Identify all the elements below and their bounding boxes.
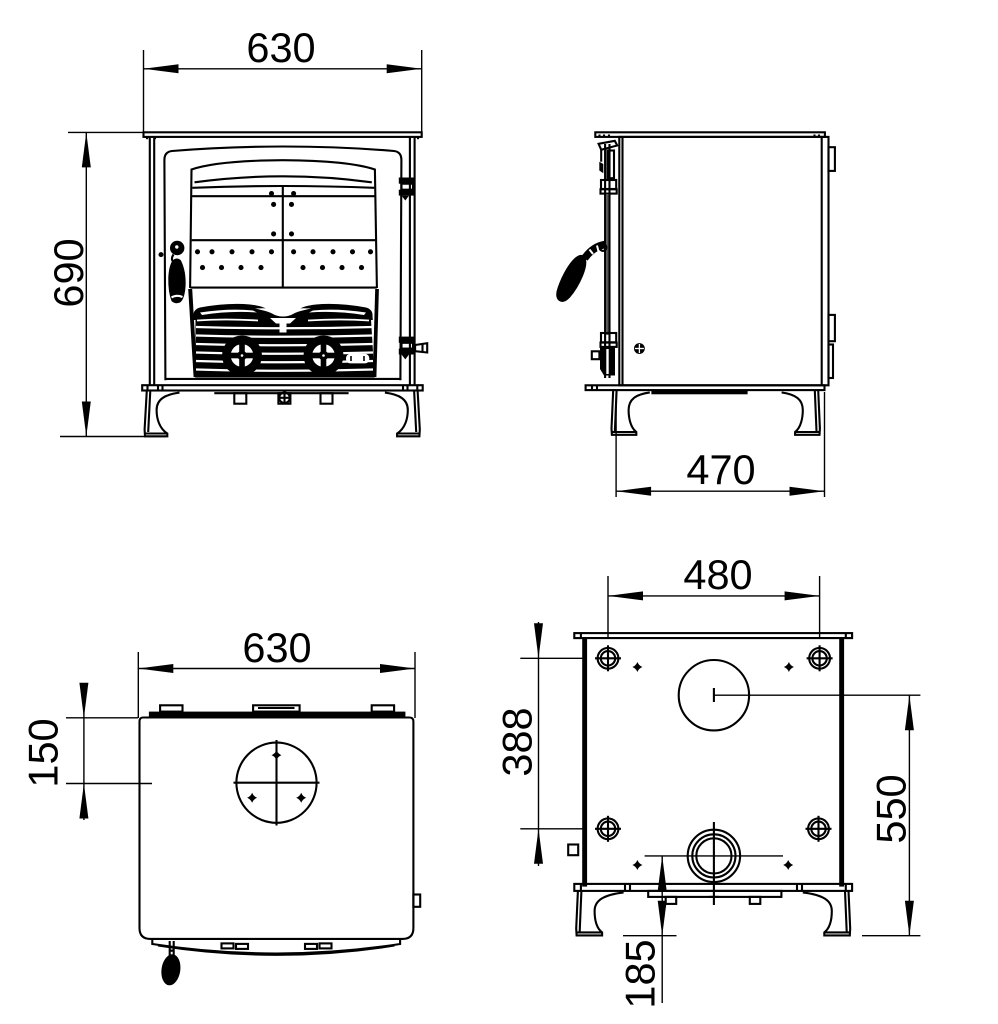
svg-text:630: 630 [242,624,311,671]
svg-text:388: 388 [494,707,541,776]
svg-text:690: 690 [45,238,92,307]
svg-text:150: 150 [20,718,67,787]
svg-text:630: 630 [246,24,315,71]
svg-text:480: 480 [683,551,752,598]
svg-text:550: 550 [868,774,915,843]
svg-text:470: 470 [686,446,755,493]
svg-text:185: 185 [617,939,664,1008]
